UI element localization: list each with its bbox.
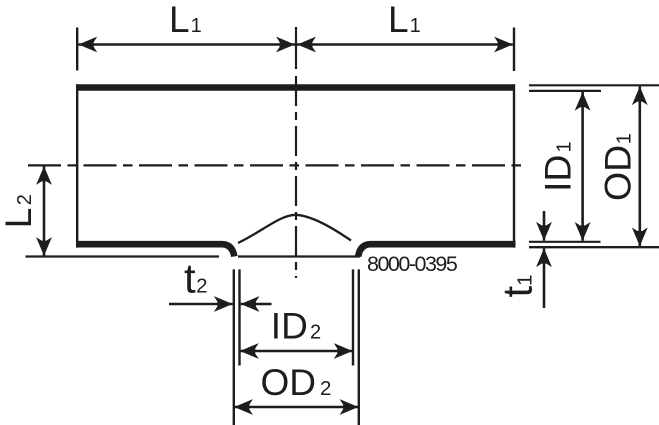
svg-text:8000-0395: 8000-0395 <box>367 252 458 276</box>
